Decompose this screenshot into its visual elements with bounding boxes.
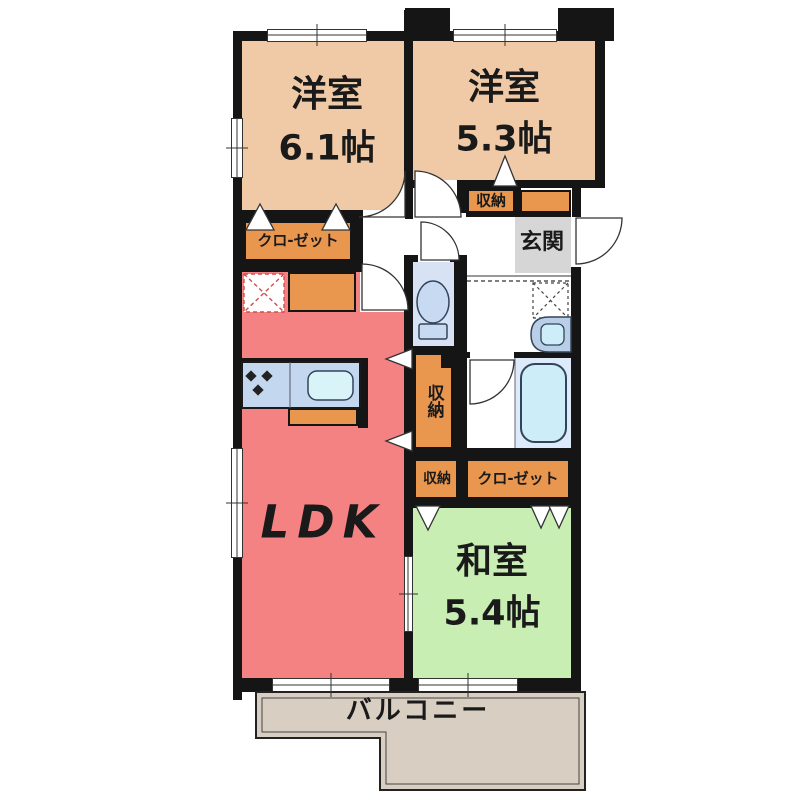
room-western1-size: 6.1帖 bbox=[278, 132, 375, 167]
door-arc-western1 bbox=[359, 171, 405, 217]
room-japanese-size: 5.4帖 bbox=[443, 597, 540, 632]
shuno-center-label: 収納 bbox=[425, 384, 442, 418]
door-arc-ldk bbox=[362, 264, 408, 310]
entrance-label: 玄関 bbox=[520, 232, 564, 254]
toilet-icon bbox=[417, 281, 449, 339]
washbasin-icon bbox=[531, 317, 571, 352]
balcony-label: バルコニー bbox=[346, 698, 490, 724]
room-ldk-label: LDK bbox=[261, 500, 386, 545]
room-western1-label: 洋室 bbox=[291, 77, 363, 113]
shuno-hall-label: 収納 bbox=[476, 194, 506, 209]
room-western2-label: 洋室 bbox=[468, 70, 540, 106]
room-japanese-label: 和室 bbox=[456, 544, 528, 580]
room-western2-size: 5.3帖 bbox=[455, 123, 552, 158]
refrigerator-space-icon bbox=[244, 274, 284, 312]
plan-graphics bbox=[0, 0, 800, 800]
door-arc-entrance bbox=[576, 218, 622, 264]
closet-west1-label: クロ-ゼット bbox=[257, 234, 338, 249]
washing-machine-space-icon bbox=[533, 283, 568, 318]
floor-plan: 洋室 6.1帖 洋室 5.3帖 LDK 和室 5.4帖 玄関 バルコニー クロ-… bbox=[0, 0, 800, 800]
closet-japanese-label: クロ-ゼット bbox=[477, 472, 558, 487]
kitchen-sink-icon bbox=[308, 371, 353, 400]
door-arc-toilet bbox=[421, 222, 459, 260]
door-arc-western2 bbox=[415, 171, 461, 217]
shuno-small-label: 収納 bbox=[423, 472, 451, 486]
door-arc-bathroom bbox=[470, 360, 514, 404]
bathtub-icon bbox=[521, 364, 566, 442]
kitchen-counter-icon bbox=[242, 362, 360, 408]
